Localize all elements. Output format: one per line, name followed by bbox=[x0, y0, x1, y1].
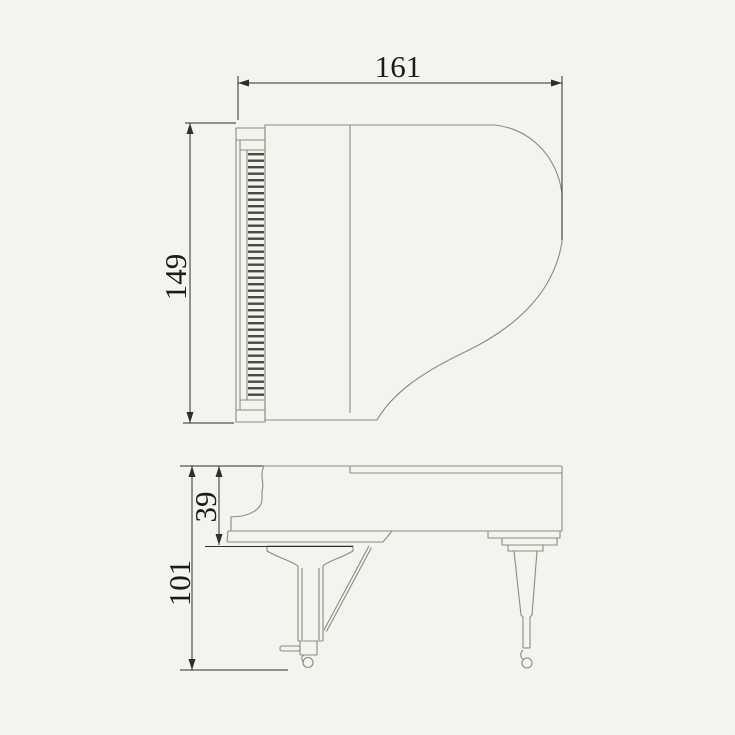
dim-101-label: 101 bbox=[162, 560, 197, 607]
dim-149-label: 149 bbox=[158, 254, 193, 301]
drawing-svg: 161 149 39 101 bbox=[0, 0, 735, 735]
piano-dimension-drawing: 161 149 39 101 bbox=[0, 0, 735, 735]
dim-161-label: 161 bbox=[375, 49, 422, 84]
dim-39-label: 39 bbox=[188, 492, 223, 523]
keyboard-keys-stripes bbox=[248, 153, 264, 398]
drawing-background bbox=[0, 0, 735, 735]
top-view-keyboard bbox=[236, 128, 265, 422]
